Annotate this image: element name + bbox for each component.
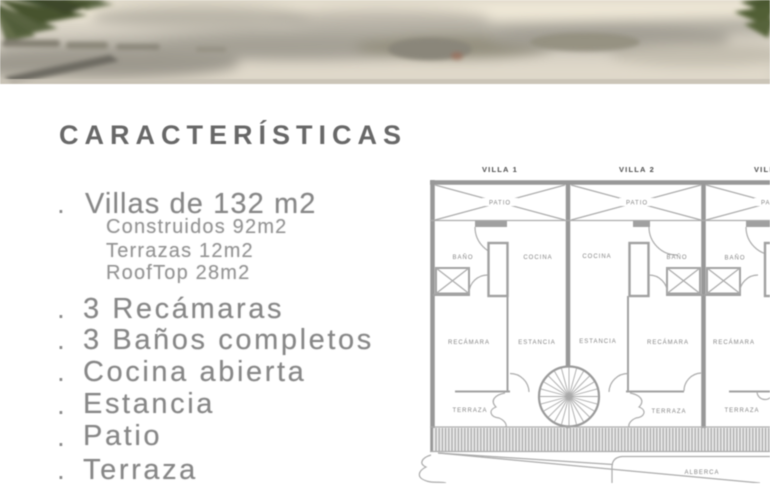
svg-text:PATIO: PATIO (626, 201, 648, 207)
svg-text:TERRAZA: TERRAZA (452, 408, 487, 414)
svg-text:BAÑO: BAÑO (452, 254, 473, 261)
svg-text:VILLA 1: VILLA 1 (482, 165, 518, 174)
svg-text:COCINA: COCINA (582, 254, 611, 260)
svg-text:COCINA: COCINA (523, 255, 552, 261)
svg-text:VILLA 2: VILLA 2 (619, 165, 655, 174)
svg-text:ESTANCIA: ESTANCIA (579, 339, 617, 345)
svg-text:RECÁMARA: RECÁMARA (713, 339, 755, 346)
svg-text:RECÁMARA: RECÁMARA (647, 339, 689, 346)
svg-text:TERRAZA: TERRAZA (724, 408, 759, 414)
svg-text:RECÁMARA: RECÁMARA (448, 339, 490, 346)
svg-text:PATIO: PATIO (761, 201, 770, 207)
svg-text:BAÑO: BAÑO (724, 255, 745, 262)
svg-text:ESTANCIA: ESTANCIA (518, 340, 556, 346)
svg-text:PATIO: PATIO (489, 201, 511, 207)
svg-text:BAÑO: BAÑO (666, 254, 687, 261)
svg-text:TERRAZA: TERRAZA (651, 409, 686, 415)
svg-text:VILLA 3: VILLA 3 (754, 165, 770, 174)
svg-text:ALBERCA: ALBERCA (684, 470, 719, 476)
